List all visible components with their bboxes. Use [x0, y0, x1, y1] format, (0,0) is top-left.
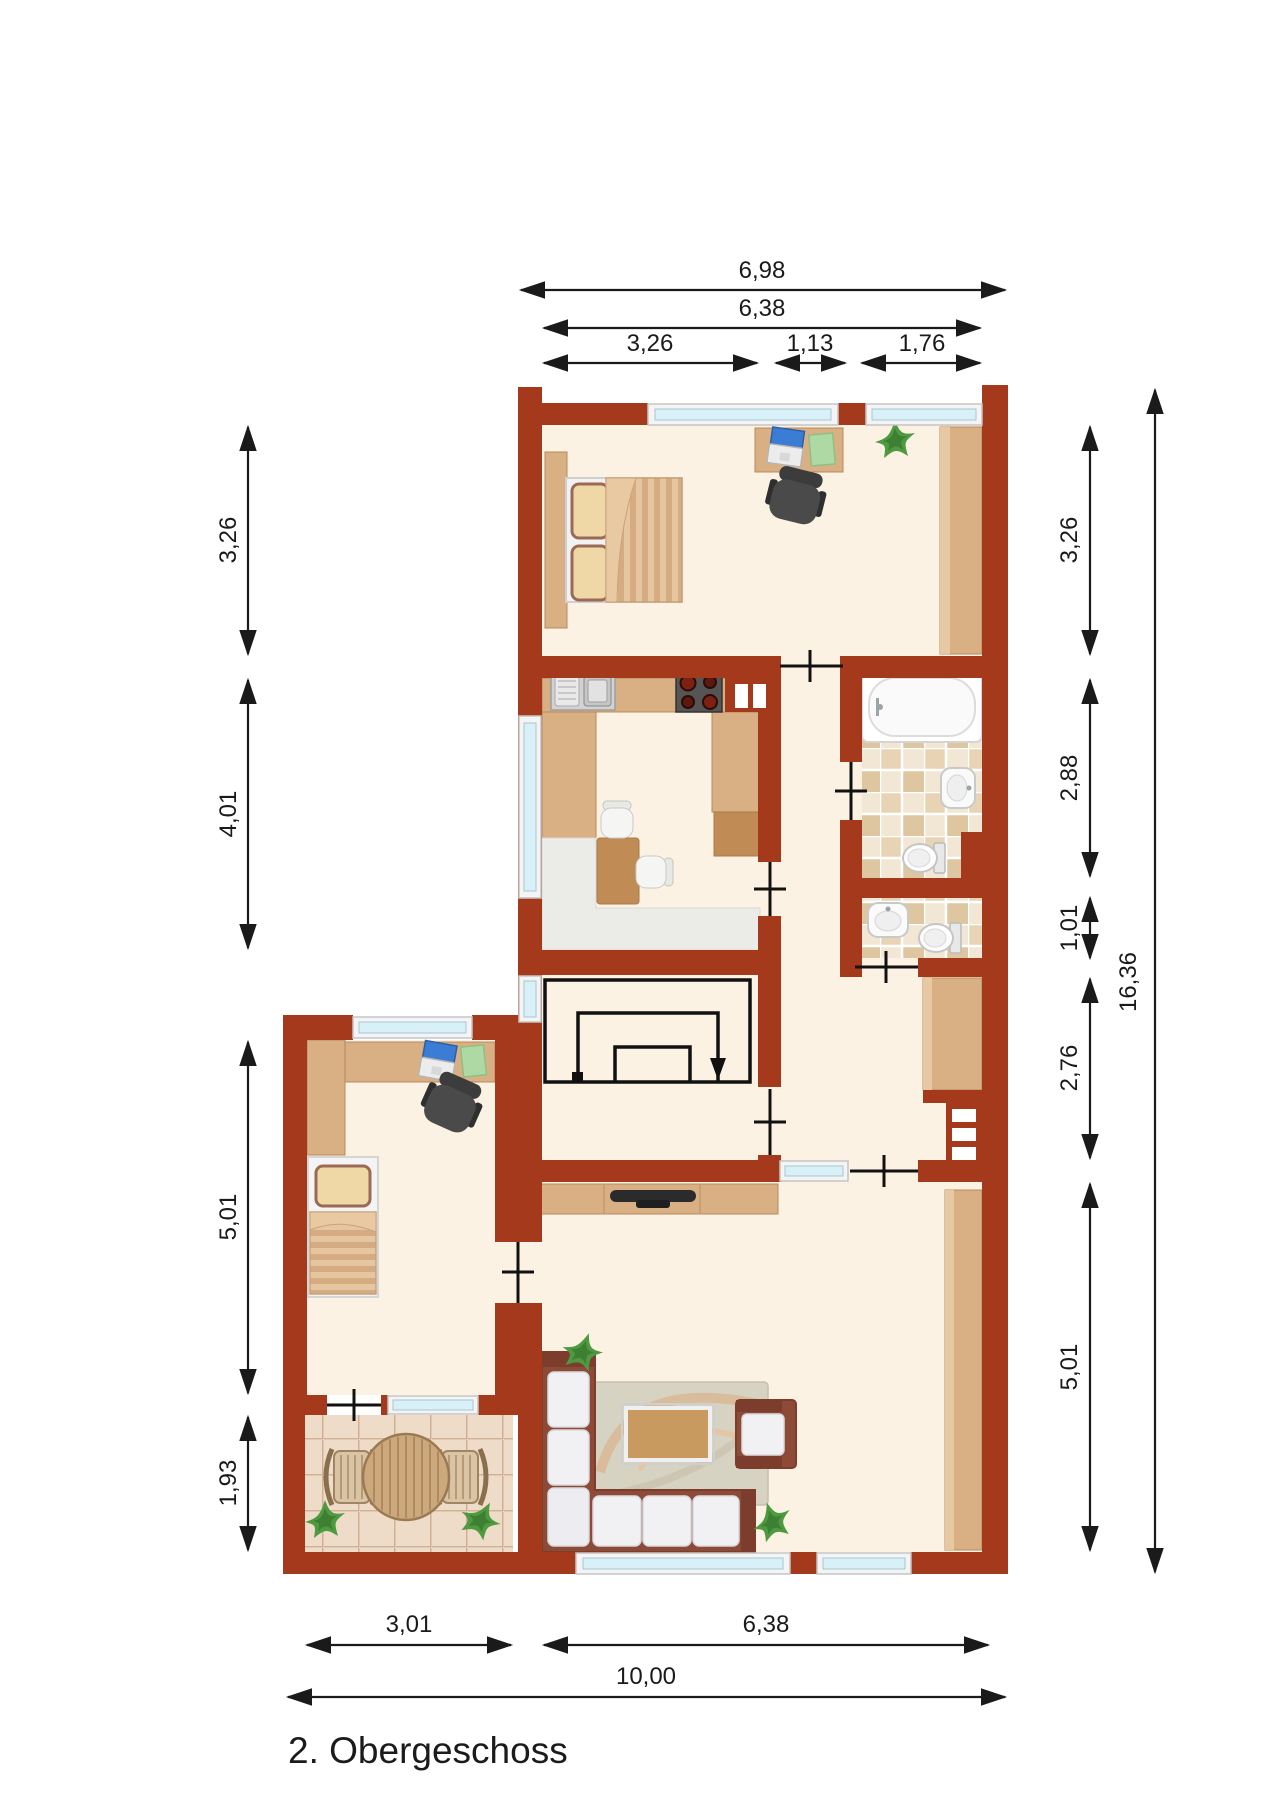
wall-bottom-a	[283, 1552, 576, 1574]
window-living-2	[817, 1553, 911, 1574]
wall-balcony-top-c	[478, 1395, 518, 1415]
burner	[703, 695, 717, 709]
dim-right-101: 1,01	[1056, 898, 1090, 958]
shelf-slot	[952, 1147, 976, 1160]
wc	[862, 898, 982, 958]
kitchen-counter-right	[712, 712, 760, 812]
toilet	[903, 843, 945, 873]
sofa-cushion	[548, 1488, 589, 1546]
laptop-icon	[767, 427, 806, 467]
dim-left-193: 1,93	[215, 1417, 248, 1550]
dim-bottom-1000: 10,00	[288, 1663, 1005, 1697]
shelf-slot	[952, 1109, 976, 1122]
wall-hall-living-a	[518, 1160, 780, 1182]
pillow	[572, 546, 608, 600]
wall-bath-top	[843, 656, 985, 678]
pillow	[316, 1166, 370, 1206]
wall-bedroom2-top-b	[472, 1015, 518, 1040]
svg-text:1,01: 1,01	[1056, 905, 1083, 952]
dim-right-276: 2,76	[1056, 979, 1090, 1158]
burner	[682, 696, 694, 708]
dim-right-501: 5,01	[1056, 1184, 1090, 1550]
window-living-1	[576, 1553, 790, 1574]
window-stairwell	[519, 976, 541, 1022]
dim-right-total-1636: 16,36	[1115, 390, 1155, 1572]
desk-pad	[460, 1045, 486, 1077]
dim-top-113: 1,13	[776, 330, 845, 363]
svg-text:6,38: 6,38	[739, 295, 786, 322]
wall-balcony-left	[283, 1415, 305, 1574]
wall-kitchen-bottom	[518, 950, 766, 975]
wardrobe-edge	[940, 427, 950, 654]
svg-text:1,76: 1,76	[899, 330, 946, 357]
pillow	[572, 484, 608, 538]
vent-slot	[753, 684, 766, 708]
svg-text:6,38: 6,38	[743, 1611, 790, 1638]
dim-left-401: 4,01	[215, 680, 248, 948]
kitchen-cabinet-left	[542, 712, 596, 838]
wall-bedroom2-left	[283, 1015, 307, 1415]
vent-shaft	[725, 678, 778, 712]
balcony	[305, 1415, 513, 1552]
bathtub-faucet-bar	[876, 698, 879, 716]
wall-balcony-top-a	[283, 1395, 327, 1415]
sofa-cushion	[548, 1372, 589, 1427]
dim-top-326: 3,26	[544, 330, 757, 363]
kitchen-table	[597, 838, 639, 904]
wall-bath-partition	[961, 832, 982, 878]
dim-left-501: 5,01	[215, 1042, 248, 1393]
wall-hall-living-b	[918, 1160, 985, 1182]
wall-top-pier	[838, 403, 866, 425]
bathtub-inner	[869, 678, 975, 736]
dim-right-288: 2,88	[1056, 680, 1090, 876]
washbasin	[941, 768, 975, 808]
svg-text:3,26: 3,26	[1056, 517, 1083, 564]
svg-text:3,26: 3,26	[627, 330, 674, 357]
corridor	[923, 978, 982, 1090]
coffee-table	[626, 1408, 710, 1460]
wall-bottom-c	[911, 1552, 1008, 1574]
stair-start-mark	[572, 1072, 583, 1083]
sofa-cushion	[548, 1430, 589, 1485]
living-wardrobe-edge	[945, 1190, 954, 1550]
window-bedroom-1	[648, 404, 838, 425]
wall-left-lower	[518, 1303, 542, 1552]
wc-washbasin	[868, 903, 908, 937]
wall-bath-wc	[840, 878, 985, 898]
desk-pad	[809, 433, 836, 466]
wall-closet-stub	[923, 1090, 982, 1103]
kitchen-chair	[636, 856, 673, 888]
svg-text:6,98: 6,98	[739, 257, 786, 284]
floor-plan-drawing: 6,98 6,38 3,26 1,13 1,76 3,26 4,01	[0, 0, 1280, 1810]
window-hall-living	[780, 1161, 848, 1181]
dim-bottom-301: 3,01	[307, 1611, 511, 1645]
svg-text:2,88: 2,88	[1056, 755, 1083, 802]
svg-text:4,01: 4,01	[215, 791, 242, 838]
shelf-slot	[952, 1128, 976, 1141]
svg-text:16,36: 16,36	[1115, 952, 1142, 1012]
dim-bottom-638: 6,38	[544, 1611, 988, 1645]
svg-text:1,13: 1,13	[787, 330, 834, 357]
svg-text:5,01: 5,01	[215, 1194, 242, 1241]
window-bedroom-2	[866, 404, 982, 425]
sofa-cushion	[693, 1496, 739, 1546]
kitchen-chair	[601, 801, 633, 838]
wall-bedroom-kitchen	[518, 656, 780, 678]
wall-balcony-top-b	[381, 1395, 388, 1415]
sink-basin-inner	[588, 680, 607, 702]
wall-right	[982, 385, 1008, 1574]
sofa-cushion	[643, 1496, 691, 1546]
dim-left-326: 3,26	[215, 427, 248, 654]
svg-text:2,76: 2,76	[1056, 1045, 1083, 1092]
window-bedroom-second	[353, 1017, 472, 1038]
sofa-armrest	[741, 1490, 755, 1552]
wall-kitchen-right-b	[758, 916, 781, 1087]
armchair	[736, 1400, 796, 1468]
wall-bedroom2-top-a	[283, 1015, 353, 1040]
floor-plan-page: 6,98 6,38 3,26 1,13 1,76 3,26 4,01	[0, 0, 1280, 1810]
bed-headboard	[545, 452, 567, 628]
wall-bath-left-b	[840, 820, 862, 977]
wall-bedroom2-right-a	[495, 1040, 518, 1242]
desk-cabinet	[307, 1040, 345, 1155]
wall-bath-left-a	[840, 656, 862, 762]
sofa-cushion	[593, 1496, 641, 1546]
window-kitchen	[519, 716, 541, 898]
dim-top-698: 6,98	[521, 257, 1005, 290]
wall-wc-bottom-a	[840, 958, 855, 977]
svg-text:3,26: 3,26	[215, 517, 242, 564]
wc-toilet	[919, 923, 961, 953]
tv-stand	[636, 1200, 670, 1208]
hall-wardrobe-edge	[923, 978, 932, 1090]
svg-text:3,01: 3,01	[386, 1611, 433, 1638]
wall-top	[542, 403, 648, 425]
svg-text:1,93: 1,93	[215, 1460, 242, 1507]
dim-top-176: 1,76	[862, 330, 980, 363]
kitchen-cabinet-right	[714, 812, 760, 856]
dim-top-638: 6,38	[544, 295, 980, 328]
dim-right-326: 3,26	[1056, 427, 1090, 654]
wall-wc-bottom-b	[918, 958, 985, 977]
window-balcony-wall	[388, 1396, 478, 1414]
svg-text:10,00: 10,00	[616, 1663, 676, 1690]
plan-title: 2. Obergeschoss	[288, 1730, 568, 1771]
wall-bottom-b	[790, 1552, 817, 1574]
svg-text:5,01: 5,01	[1056, 1344, 1083, 1391]
vent-slot	[735, 684, 748, 708]
